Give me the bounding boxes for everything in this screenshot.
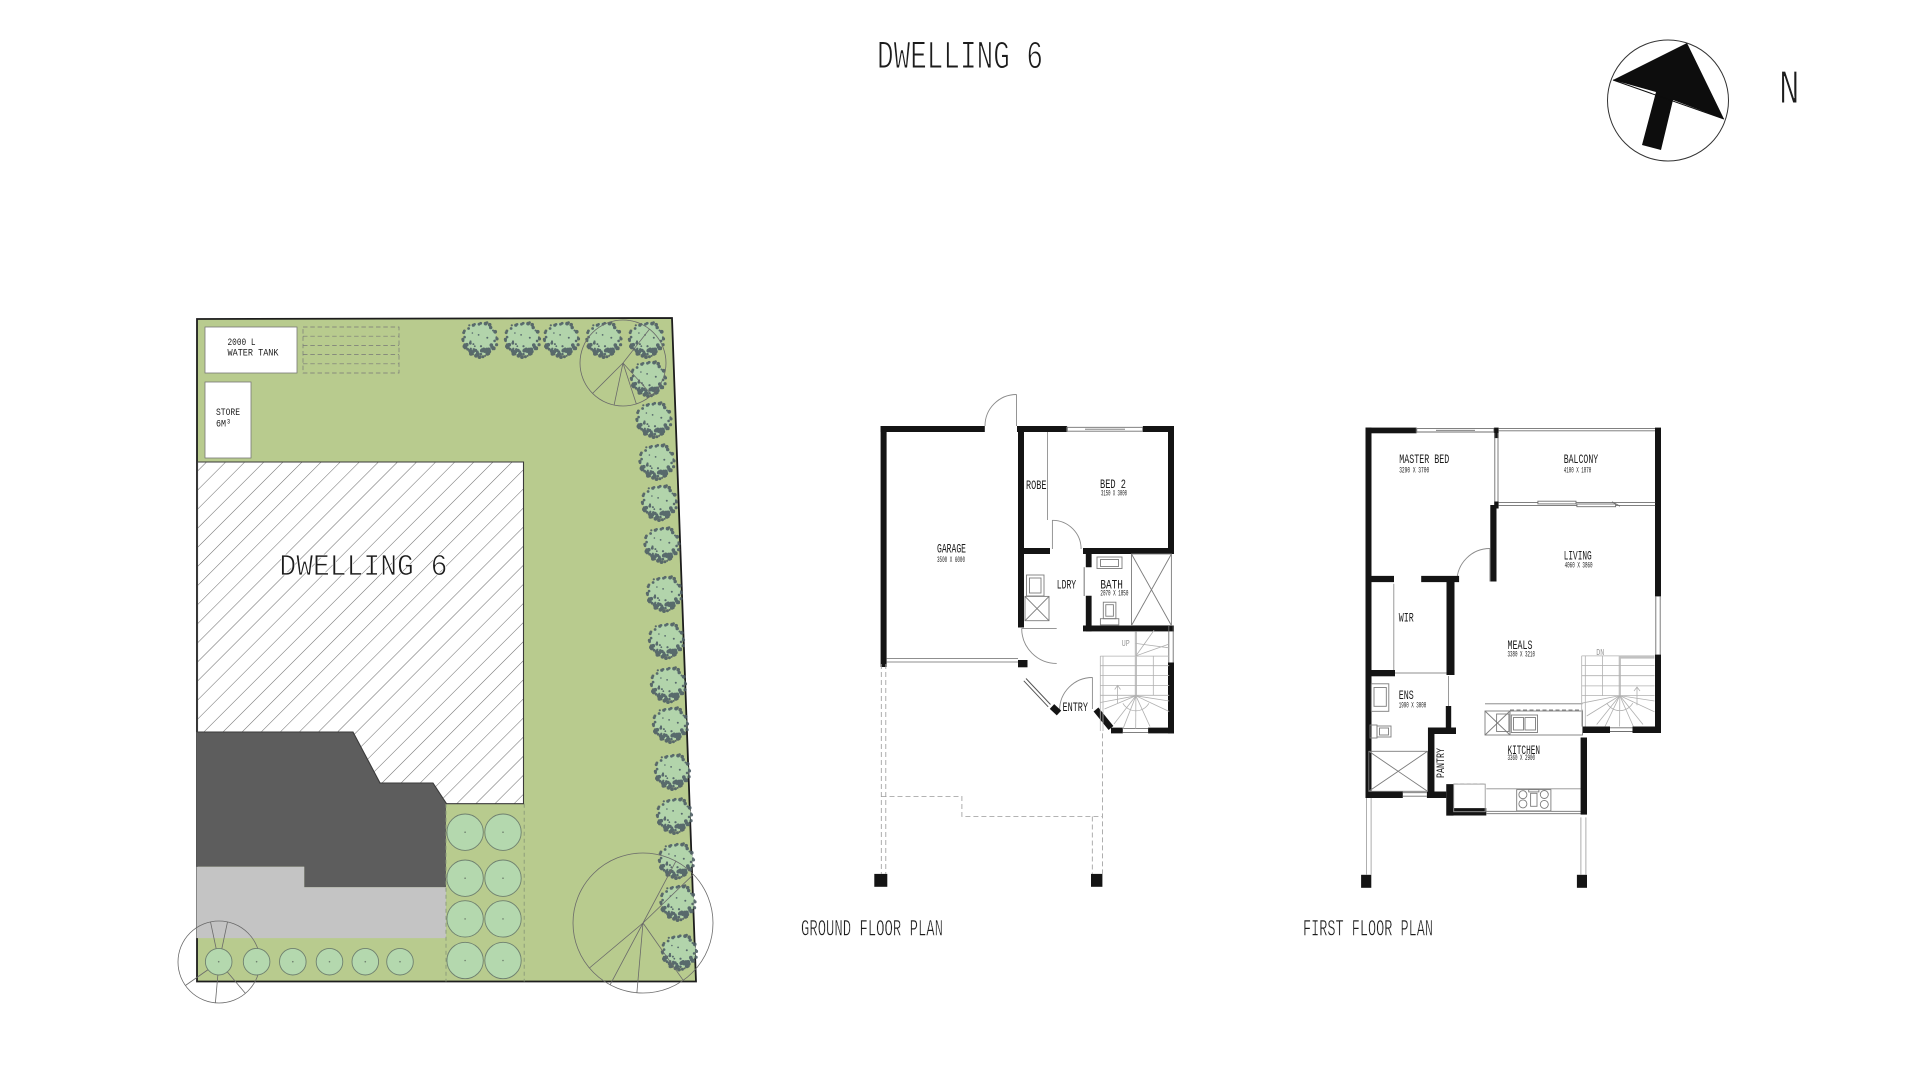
svg-text:2070 X 1850: 2070 X 1850 xyxy=(1100,589,1128,598)
svg-text:STORE: STORE xyxy=(216,408,240,419)
svg-text:MASTER BED: MASTER BED xyxy=(1399,452,1449,467)
svg-text:DWELLING 6: DWELLING 6 xyxy=(877,36,1043,81)
svg-text:FIRST FLOOR PLAN: FIRST FLOOR PLAN xyxy=(1303,917,1433,943)
svg-text:WATER TANK: WATER TANK xyxy=(228,349,279,360)
svg-text:3360 X 2900: 3360 X 2900 xyxy=(1508,754,1536,763)
svg-text:GARAGE: GARAGE xyxy=(937,542,966,557)
svg-text:GROUND FLOOR PLAN: GROUND FLOOR PLAN xyxy=(801,917,943,943)
svg-text:1990 X 3000: 1990 X 3000 xyxy=(1399,702,1427,711)
svg-text:BALCONY: BALCONY xyxy=(1564,452,1599,467)
svg-text:3290 X 3700: 3290 X 3700 xyxy=(1399,467,1429,476)
svg-text:3500 X 6000: 3500 X 6000 xyxy=(937,556,965,565)
svg-text:4060 X 3860: 4060 X 3860 xyxy=(1565,561,1593,570)
svg-text:LDRY: LDRY xyxy=(1057,578,1077,593)
svg-text:PANTRY: PANTRY xyxy=(1436,748,1448,778)
svg-text:DN: DN xyxy=(1596,648,1604,658)
svg-text:ROBE: ROBE xyxy=(1026,478,1047,493)
svg-text:3380 X 3210: 3380 X 3210 xyxy=(1508,650,1536,659)
svg-text:2000 L: 2000 L xyxy=(228,338,256,349)
svg-text:4100 X 1870: 4100 X 1870 xyxy=(1564,467,1592,476)
svg-text:N: N xyxy=(1779,64,1800,118)
svg-text:3150 X 3000: 3150 X 3000 xyxy=(1101,490,1127,499)
svg-text:ENTRY: ENTRY xyxy=(1063,700,1089,715)
svg-text:WIR: WIR xyxy=(1399,610,1414,625)
svg-text:DWELLING 6: DWELLING 6 xyxy=(279,551,447,585)
svg-text:6M³: 6M³ xyxy=(216,420,231,431)
svg-text:UP: UP xyxy=(1122,639,1130,649)
